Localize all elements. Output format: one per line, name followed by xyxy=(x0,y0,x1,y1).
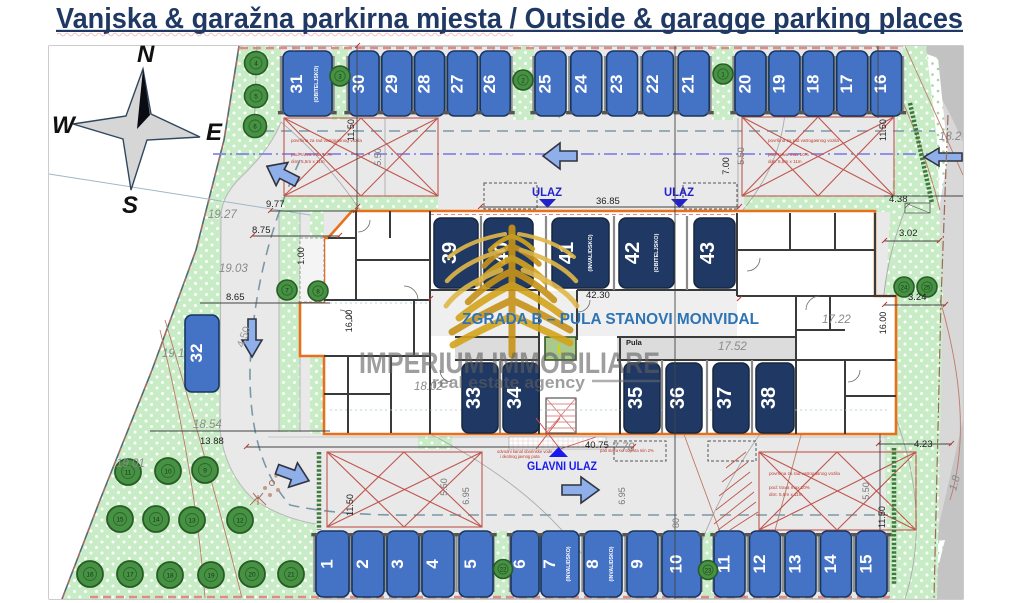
svg-text:42.30: 42.30 xyxy=(586,290,610,301)
svg-text:19.01: 19.01 xyxy=(116,458,145,470)
svg-text:18.54: 18.54 xyxy=(193,419,222,431)
svg-text:13.88: 13.88 xyxy=(200,436,224,447)
svg-text:11.50: 11.50 xyxy=(878,119,888,141)
svg-text:42: 42 xyxy=(622,242,644,264)
svg-text:21: 21 xyxy=(287,572,295,579)
svg-text:24: 24 xyxy=(571,74,590,93)
svg-text:dim: 5,5m x 11m: dim: 5,5m x 11m xyxy=(768,159,802,164)
svg-text:22: 22 xyxy=(500,568,507,574)
svg-text:17: 17 xyxy=(126,572,134,579)
svg-text:12: 12 xyxy=(750,555,769,574)
svg-text:16: 16 xyxy=(86,572,94,579)
svg-text:18: 18 xyxy=(166,573,174,580)
svg-text:W: W xyxy=(52,112,77,139)
svg-text:8.75: 8.75 xyxy=(252,225,271,236)
svg-text:24: 24 xyxy=(901,286,908,292)
svg-text:E: E xyxy=(206,119,223,146)
svg-text:5.50: 5.50 xyxy=(439,478,449,496)
svg-text:real estate agency: real estate agency xyxy=(432,374,586,392)
svg-text:pod: trava max 10%: pod: trava max 10% xyxy=(291,152,332,157)
svg-text:19.03: 19.03 xyxy=(219,263,248,275)
svg-text:40.75: 40.75 xyxy=(585,440,609,451)
svg-text:pod: trava max 10%: pod: trava max 10% xyxy=(769,485,810,490)
svg-text:15: 15 xyxy=(116,517,124,524)
svg-text:23: 23 xyxy=(705,569,712,575)
svg-text:30: 30 xyxy=(349,75,368,94)
svg-text:8.65: 8.65 xyxy=(226,292,245,303)
svg-text:ULAZ: ULAZ xyxy=(664,185,694,199)
svg-text:20: 20 xyxy=(248,572,256,579)
svg-text:GLAVNI ULAZ: GLAVNI ULAZ xyxy=(527,459,597,473)
svg-text:10: 10 xyxy=(164,469,172,476)
svg-text:(OBITELJSKO): (OBITELJSKO) xyxy=(314,65,320,102)
svg-text:4: 4 xyxy=(423,559,442,569)
svg-text:13: 13 xyxy=(786,555,805,574)
svg-text:N: N xyxy=(137,41,155,68)
svg-text:17.52: 17.52 xyxy=(718,341,747,353)
svg-text:11: 11 xyxy=(125,470,132,477)
svg-text:20: 20 xyxy=(736,75,755,94)
svg-text:80: 80 xyxy=(671,518,681,528)
svg-text:16.00: 16.00 xyxy=(344,310,354,333)
svg-text:16.00: 16.00 xyxy=(878,312,888,335)
svg-text:21: 21 xyxy=(679,75,698,94)
svg-text:4.23: 4.23 xyxy=(914,439,933,450)
svg-text:28: 28 xyxy=(415,75,434,94)
svg-text:ULAZ: ULAZ xyxy=(532,185,562,199)
svg-text:9.77: 9.77 xyxy=(266,199,285,210)
svg-text:površina za rad vatrogasnog vo: površina za rad vatrogasnog vozila xyxy=(768,138,839,143)
svg-text:8: 8 xyxy=(583,559,602,568)
svg-text:23: 23 xyxy=(607,75,626,94)
svg-text:(OBITELJSKO): (OBITELJSKO) xyxy=(654,233,660,272)
svg-text:13: 13 xyxy=(188,518,196,525)
svg-text:9: 9 xyxy=(628,559,647,568)
svg-text:pod: trava max 10%: pod: trava max 10% xyxy=(768,152,809,157)
svg-text:22: 22 xyxy=(643,75,662,94)
svg-text:14: 14 xyxy=(821,554,840,573)
svg-text:10: 10 xyxy=(667,555,686,574)
svg-text:25: 25 xyxy=(536,75,555,94)
svg-text:31: 31 xyxy=(287,75,306,94)
svg-text:19.27: 19.27 xyxy=(208,209,237,221)
svg-text:36.85: 36.85 xyxy=(596,196,620,207)
svg-text:38: 38 xyxy=(758,387,780,409)
svg-text:ZGRADA B – PULA STANOVI MONVID: ZGRADA B – PULA STANOVI MONVIDAL xyxy=(462,311,759,328)
svg-text:16: 16 xyxy=(871,75,890,94)
svg-text:12: 12 xyxy=(236,518,244,525)
svg-text:18.2: 18.2 xyxy=(939,131,962,143)
svg-text:(INVALIDSKO): (INVALIDSKO) xyxy=(566,546,572,581)
svg-text:2: 2 xyxy=(353,559,372,568)
svg-text:7.00: 7.00 xyxy=(721,157,731,175)
svg-text:Pula: Pula xyxy=(626,338,643,347)
svg-text:dim: 5,5m x 11m: dim: 5,5m x 11m xyxy=(769,492,803,497)
svg-text:36: 36 xyxy=(667,387,689,409)
svg-text:19: 19 xyxy=(207,573,215,580)
svg-text:18: 18 xyxy=(803,75,822,94)
svg-text:dim: 5,5m x 11m: dim: 5,5m x 11m xyxy=(291,159,325,164)
svg-text:7: 7 xyxy=(540,559,559,568)
svg-text:26: 26 xyxy=(480,75,499,94)
svg-text:19.1: 19.1 xyxy=(162,348,184,360)
svg-text:11.50: 11.50 xyxy=(346,119,356,141)
svg-text:1.00: 1.00 xyxy=(296,247,306,265)
svg-text:37: 37 xyxy=(714,387,736,409)
svg-text:11.50: 11.50 xyxy=(345,494,355,516)
svg-text:6.95: 6.95 xyxy=(461,487,471,505)
svg-text:11.50: 11.50 xyxy=(877,506,887,528)
svg-text:15: 15 xyxy=(857,555,876,574)
svg-text:25: 25 xyxy=(924,286,931,292)
svg-text:27: 27 xyxy=(447,75,466,94)
svg-text:(INVALIDSKO): (INVALIDSKO) xyxy=(609,546,615,581)
svg-text:17.22: 17.22 xyxy=(822,314,851,326)
svg-text:19: 19 xyxy=(769,75,788,94)
svg-text:3: 3 xyxy=(388,559,407,568)
svg-text:5.50: 5.50 xyxy=(861,482,871,500)
svg-text:(INVALIDSKO): (INVALIDSKO) xyxy=(588,234,594,271)
svg-text:3.24: 3.24 xyxy=(908,292,927,303)
svg-text:5.50: 5.50 xyxy=(373,148,383,166)
svg-text:površina za rad vatrogasnog vo: površina za rad vatrogasnog vozila xyxy=(769,471,840,476)
svg-text:32: 32 xyxy=(187,344,206,363)
svg-text:17: 17 xyxy=(837,75,856,94)
svg-text:3.02: 3.02 xyxy=(899,228,918,239)
svg-text:14: 14 xyxy=(152,517,160,524)
svg-text:5.50: 5.50 xyxy=(736,147,746,165)
svg-text:29: 29 xyxy=(382,75,401,94)
svg-text:S: S xyxy=(122,192,138,219)
svg-text:1: 1 xyxy=(318,559,337,568)
svg-text:6.95: 6.95 xyxy=(617,487,627,505)
svg-text:43: 43 xyxy=(697,242,719,264)
svg-text:9: 9 xyxy=(203,468,207,475)
svg-text:5: 5 xyxy=(461,559,480,568)
svg-text:35: 35 xyxy=(625,387,647,409)
